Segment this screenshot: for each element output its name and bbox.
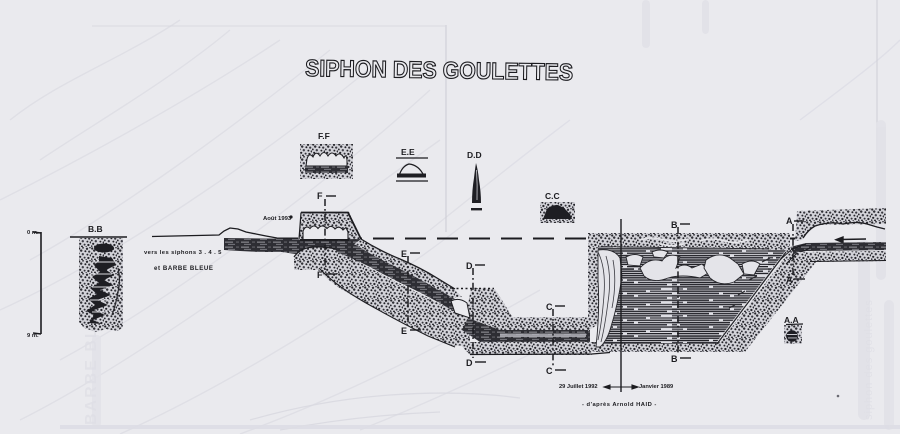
- svg-text:C: C: [546, 366, 553, 376]
- svg-text:29 Juillet 1992: 29 Juillet 1992: [559, 384, 598, 390]
- svg-text:- d'après Arnold HAID -: - d'après Arnold HAID -: [582, 402, 657, 408]
- svg-text:F.F: F.F: [318, 131, 330, 141]
- svg-text:B.B: B.B: [88, 224, 103, 234]
- svg-text:vers les siphons 3 . 4 . 5: vers les siphons 3 . 4 . 5: [144, 250, 222, 256]
- svg-text:9 m.: 9 m.: [27, 333, 39, 339]
- svg-text:A: A: [786, 216, 793, 226]
- svg-text:F: F: [317, 270, 323, 280]
- svg-text:Août 1993: Août 1993: [263, 216, 292, 222]
- svg-text:E: E: [401, 326, 407, 336]
- svg-text:C: C: [546, 302, 553, 312]
- svg-text:0 m.: 0 m.: [27, 230, 39, 236]
- svg-text:SIPHON DES GOULETTES: SIPHON DES GOULETTES: [305, 55, 573, 85]
- svg-text:A: A: [786, 275, 793, 285]
- svg-text:D: D: [466, 261, 473, 271]
- svg-text:A.A: A.A: [784, 315, 799, 325]
- svg-text:E: E: [401, 249, 407, 259]
- svg-text:Janvier 1989: Janvier 1989: [639, 384, 673, 390]
- svg-text:et BARBE BLEUE: et BARBE BLEUE: [154, 265, 214, 272]
- svg-text:B: B: [671, 354, 678, 364]
- svg-text:D: D: [466, 358, 473, 368]
- svg-text:F: F: [317, 191, 323, 201]
- svg-text:C.C: C.C: [545, 191, 560, 201]
- svg-text:siphon des goulettes: siphon des goulettes: [863, 299, 875, 420]
- svg-text:B: B: [671, 220, 678, 230]
- svg-text:E.E: E.E: [401, 147, 415, 157]
- svg-text:D.D: D.D: [467, 150, 482, 160]
